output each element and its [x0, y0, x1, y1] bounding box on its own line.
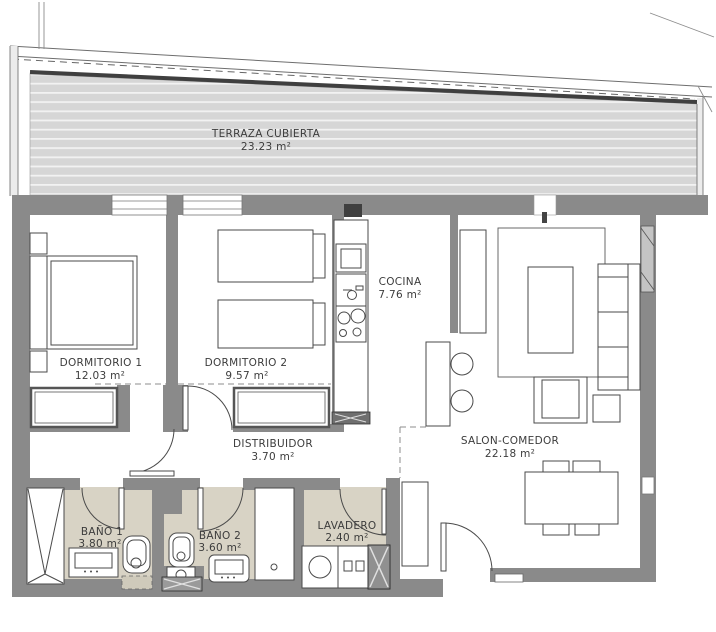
bed-pillow-2	[313, 303, 325, 345]
bar-stool	[451, 390, 473, 412]
vanity-dot	[84, 571, 86, 573]
floor-plan-drawing: TERRAZA CUBIERTA 23.23 m² DORMITORIO 1 1…	[0, 0, 716, 632]
tv-unit	[460, 230, 486, 333]
label-bano2-name: BAÑO 2	[199, 529, 241, 542]
dining-chair	[543, 461, 569, 472]
toilet-cistern-dashed	[122, 576, 152, 589]
label-salon-area: 22.18 m²	[485, 448, 535, 460]
hall-cabinet	[402, 482, 428, 566]
sofa	[598, 264, 640, 390]
label-bano1-area: 3.80 m²	[78, 538, 121, 550]
duct-bano2-corner	[164, 488, 182, 514]
label-dorm2-name: DORMITORIO 2	[205, 357, 288, 369]
window-dorm2	[183, 195, 242, 215]
entry-threshold	[495, 574, 523, 582]
floor-plan-page: TERRAZA CUBIERTA 23.23 m² DORMITORIO 1 1…	[0, 0, 716, 632]
wardrobe-dorm1	[31, 388, 117, 427]
sink-dot	[221, 577, 223, 579]
door-leaf-dorm1	[130, 471, 174, 476]
side-table	[593, 395, 620, 422]
dining-chair	[573, 461, 600, 472]
vanity-dot	[90, 571, 92, 573]
label-terraza-area: 23.23 m²	[241, 141, 291, 153]
label-salon-name: SALON-COMEDOR	[461, 435, 559, 447]
washing-machine	[302, 546, 338, 588]
label-dorm1-area: 12.03 m²	[75, 370, 125, 382]
window-dorm1	[112, 195, 167, 215]
label-cocina-area: 7.76 m²	[378, 289, 421, 301]
label-dorm1-name: DORMITORIO 1	[60, 357, 143, 369]
bar-stool	[451, 353, 473, 375]
cooktop	[336, 306, 366, 342]
laundry-unit	[338, 546, 371, 588]
label-cocina-name: COCINA	[379, 276, 422, 288]
single-bed-1	[218, 230, 313, 282]
sink-dot	[233, 577, 235, 579]
door-leaf-entrance	[441, 523, 446, 571]
door-leaf-bano1	[119, 488, 124, 529]
kitchen-vent	[344, 204, 362, 217]
vanity-dot	[96, 571, 98, 573]
label-distribuidor-area: 3.70 m²	[251, 451, 294, 463]
terrace-door-pivot	[542, 212, 547, 223]
wall-dorm-divider	[166, 215, 178, 387]
wall-bath-top-b	[123, 478, 200, 490]
dormitorio2-furniture	[218, 230, 329, 427]
label-terraza-name: TERRAZA CUBIERTA	[211, 128, 321, 140]
sink-dot	[227, 577, 229, 579]
label-lavadero-name: LAVADERO	[318, 520, 377, 532]
dining-table	[525, 472, 618, 524]
shower-bano2	[255, 488, 294, 580]
nightstand	[30, 351, 47, 372]
label-lavadero-area: 2.40 m²	[325, 532, 368, 544]
label-bano2-area: 3.60 m²	[198, 542, 241, 554]
coffee-table	[528, 267, 573, 353]
dining-chair	[543, 524, 569, 535]
wall-kitchen-salon-stub	[450, 215, 458, 333]
label-dorm2-area: 9.57 m²	[225, 370, 268, 382]
vanity-bano1	[69, 548, 118, 577]
door-leaf-bano2	[198, 488, 203, 529]
door-leaf-lavadero	[382, 489, 386, 534]
window-salon-right	[641, 226, 654, 292]
bed-pillow-1	[313, 234, 325, 278]
terrace-right-parapet	[697, 98, 703, 195]
sink-tap	[356, 286, 363, 290]
nightstand	[30, 233, 47, 254]
single-bed-2	[218, 300, 313, 348]
label-bano1-name: BAÑO 1	[81, 525, 123, 538]
double-bed	[30, 256, 137, 349]
wardrobe-dorm2	[234, 388, 329, 427]
wall-right-notch	[642, 477, 654, 494]
dining-chair	[575, 524, 599, 535]
breakfast-bar	[426, 342, 450, 426]
label-distribuidor-name: DISTRIBUIDOR	[233, 438, 313, 450]
terrace-left-parapet	[10, 46, 18, 196]
door-leaf-dorm2	[183, 386, 188, 430]
